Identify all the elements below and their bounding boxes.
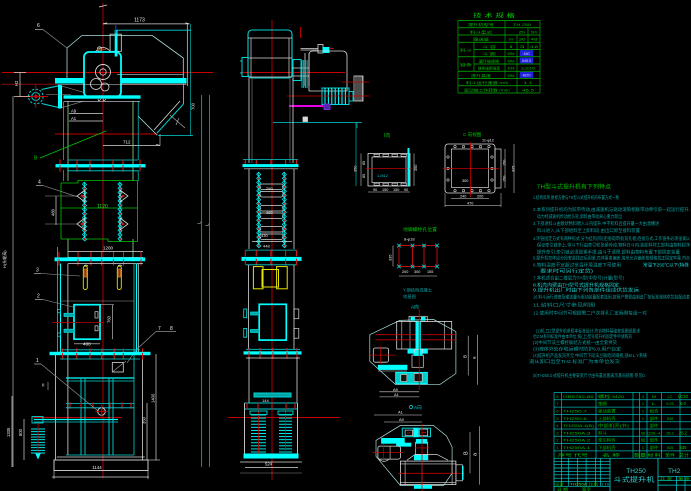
- svg-text:料斗运行速度 m/s: 料斗运行速度 m/s: [466, 80, 508, 85]
- svg-text:1: 1: [556, 445, 558, 450]
- svg-text:MM: MM: [508, 74, 515, 78]
- svg-text:448: 448: [263, 243, 270, 248]
- svg-text:链条破断强度: 链条破断强度: [478, 66, 500, 71]
- svg-text:11.给料口尺寸参见附图: 11.给料口尺寸参见附图: [533, 301, 595, 308]
- svg-text:9.提升机出厂时由下列各部件组成供货发运: 9.提升机出厂时由下列各部件组成供货发运: [533, 286, 640, 293]
- svg-text:A1: A1: [398, 410, 404, 415]
- svg-text:斗 距: 斗 距: [482, 51, 497, 56]
- svg-text:斗 容: 斗 容: [482, 44, 497, 49]
- svg-text:760: 760: [107, 315, 112, 323]
- svg-text:也Z.M系列标准件由本单位,统(上)型号提升机固定件申请购货: 也Z.M系列标准件由本单位,统(上)型号提升机固定件申请购货: [533, 333, 633, 340]
- svg-text:300: 300: [414, 270, 420, 274]
- svg-text:1.结构简单,维修方便与TH型斗式提升机的布置方式一致: 1.结构简单,维修方便与TH型斗式提升机的布置方式一致: [533, 194, 620, 201]
- svg-text:(3)液体外处存和运输时防护6.8.用户自定: (3)液体外处存和运输时防护6.8.用户自定: [533, 346, 622, 353]
- svg-text:3: 3: [36, 268, 39, 274]
- svg-text:斗式提升机: 斗式提升机: [614, 475, 656, 484]
- svg-text:组: 组: [641, 438, 645, 443]
- svg-text:日 期: 日 期: [557, 486, 569, 491]
- svg-text:430: 430: [261, 233, 268, 238]
- svg-text:350: 350: [414, 165, 418, 171]
- svg-text:5: 5: [556, 416, 558, 421]
- svg-text:12.使用时中间节可根据需二户次排孔匚定两侧每组一对: 12.使用时中间节可根据需二户次排孔匚定两侧每组一对: [533, 309, 648, 316]
- svg-text:200: 200: [477, 195, 483, 199]
- svg-text:2: 2: [556, 438, 558, 443]
- svg-text:部件: 部件: [650, 416, 659, 421]
- svg-text:90: 90: [373, 188, 377, 192]
- svg-text:组合: 组合: [650, 409, 659, 414]
- svg-text:535: 535: [667, 445, 674, 450]
- svg-text:地基图: 地基图: [403, 293, 416, 300]
- svg-text:GB5782-86: GB5782-86: [563, 394, 594, 399]
- svg-text:TH250.6: TH250.6: [563, 416, 587, 421]
- svg-text:要求时可另行定货): 要求时可另行定货): [540, 268, 594, 275]
- svg-text:TH250A.2: TH250A.2: [563, 438, 590, 443]
- svg-text:800: 800: [18, 428, 23, 436]
- svg-text:96: 96: [641, 430, 645, 435]
- svg-text:TH250: TH250: [626, 468, 646, 475]
- svg-text:700: 700: [191, 102, 196, 110]
- svg-text:签字: 签字: [582, 486, 592, 491]
- svg-text:7: 7: [158, 326, 161, 332]
- svg-text:第 张: 第 张: [678, 476, 691, 481]
- svg-text:6: 6: [556, 409, 558, 414]
- svg-text:A1: A1: [71, 116, 77, 121]
- svg-text:LC: LC: [668, 394, 673, 399]
- svg-text:350: 350: [142, 416, 147, 424]
- svg-text:TH2: TH2: [668, 468, 681, 475]
- svg-text:材 料: 材 料: [648, 452, 662, 459]
- svg-text:535: 535: [667, 416, 674, 421]
- svg-text:(5)TH250斗式提升机主要安装尺寸由布置总图表示基局部图: (5)TH250斗式提升机主要安装尺寸由布置总图表示基局部图 参见D.: [533, 372, 646, 379]
- svg-text:KN: KN: [508, 67, 515, 71]
- svg-text:螺栓 M20: 螺栓 M20: [598, 394, 626, 399]
- svg-text:B: B: [463, 451, 469, 455]
- svg-text:序号 代号: 序号 代号: [558, 452, 588, 459]
- svg-text:1400: 1400: [151, 393, 156, 403]
- svg-text:9.05: 9.05: [666, 401, 674, 406]
- svg-text:85: 85: [362, 161, 366, 165]
- svg-text:535: 535: [680, 445, 688, 450]
- svg-text:MM: MM: [508, 52, 515, 56]
- svg-text:1200: 1200: [103, 246, 114, 251]
- svg-text:A9: A9: [71, 108, 77, 113]
- svg-text:470: 470: [467, 202, 473, 206]
- svg-text:提升牵引,牵引链必须张紧手提,由斗于清理,卸料由物料布置下部: 提升牵引,牵引链必须张紧手提,由斗于清理,卸料由物料布置下部固定装置: [537, 249, 681, 256]
- svg-text:A1: A1: [394, 392, 400, 397]
- svg-text:M: M: [652, 394, 656, 399]
- svg-text:1144: 1144: [92, 465, 102, 470]
- svg-text:Sh: Sh: [531, 30, 538, 34]
- svg-text:TH型斗式提升机有下列特点: TH型斗式提升机有下列特点: [537, 183, 611, 191]
- svg-text:250: 250: [266, 186, 273, 191]
- svg-text:(4)提升机产品发货齐全,中间节下段法兰联结间隔板,部M.L: (4)提升机产品发货齐全,中间节下段法兰联结间隔板,部M.L.Y系统: [533, 352, 648, 359]
- svg-text:11-φ12: 11-φ12: [482, 139, 494, 143]
- svg-text:TH250A.3: TH250A.3: [563, 430, 590, 435]
- svg-text:150: 150: [503, 176, 507, 182]
- svg-text:335: 335: [389, 255, 393, 261]
- svg-text:325: 325: [512, 166, 516, 172]
- svg-text:8-φ18: 8-φ18: [404, 237, 415, 242]
- svg-text:4: 4: [38, 180, 41, 186]
- svg-text:26.2: 26.2: [666, 430, 674, 435]
- svg-text:共 张: 共 张: [660, 476, 673, 481]
- svg-text:1:10: 1:10: [601, 483, 609, 487]
- svg-text:名 称: 名 称: [602, 452, 620, 459]
- svg-text:部件: 部件: [650, 423, 659, 428]
- svg-text:≥320: ≥320: [521, 67, 535, 71]
- svg-text:350: 350: [354, 166, 358, 172]
- svg-text:180: 180: [266, 210, 273, 215]
- svg-text:输送量: 输送量: [473, 37, 489, 42]
- svg-text:驱动装置: 驱动装置: [598, 409, 616, 414]
- svg-text:部件: 部件: [650, 438, 659, 443]
- svg-text:LC10: LC10: [678, 394, 689, 399]
- svg-text:1: 1: [36, 358, 39, 364]
- svg-text:46.5: 46.5: [522, 88, 534, 92]
- svg-text:动力经减速机传动给头轮,卸料由带动离心重力卸出: 动力经减速机传动给头轮,卸料由带动离心重力卸出: [537, 213, 622, 220]
- svg-text:MM: MM: [508, 59, 515, 63]
- svg-text:6.物料温度不宜超过常温环境温度下可使用: 6.物料温度不宜超过常温环境温度下可使用: [533, 262, 621, 269]
- svg-text:300: 300: [462, 179, 468, 183]
- svg-text:4.8: 4.8: [530, 45, 538, 49]
- svg-text:2: 2: [37, 294, 40, 300]
- svg-text:中部机壳(节): 中部机壳(节): [598, 423, 630, 428]
- svg-text:150: 150: [393, 188, 399, 192]
- svg-text:垫圈: 垫圈: [598, 401, 607, 406]
- svg-text:150: 150: [382, 188, 388, 192]
- svg-text:240: 240: [460, 195, 466, 199]
- svg-text:A向: A向: [414, 404, 422, 410]
- svg-text:料斗进入,从下部给料至上卸料段,由出口卸至接料装置: 料斗进入,从下部给料至上卸料段,由出口卸至接料装置: [537, 227, 641, 234]
- svg-text:料斗型式: 料斗型式: [470, 29, 492, 34]
- svg-text:下部机壳: 下部机壳: [598, 445, 616, 450]
- svg-text:链条: 链条: [460, 62, 473, 67]
- svg-text:TH250A: TH250A: [570, 483, 588, 487]
- svg-text:9.0: 9.0: [680, 401, 686, 406]
- svg-text:480: 480: [524, 52, 530, 56]
- svg-text:料斗: 料斗: [460, 48, 473, 53]
- svg-text:4.环链固定方式有两种形式,分为挂钩(钩)连接或焊接(双孔板: 4.环链固定方式有两种形式,分为挂钩(钩)连接或焊接(双孔板)连接方式,工作链条…: [533, 235, 691, 242]
- svg-text:3: 3: [520, 45, 525, 49]
- svg-text:总计: 总计: [679, 452, 689, 459]
- svg-text:480: 480: [83, 342, 91, 347]
- svg-text:85: 85: [362, 174, 366, 178]
- svg-text:设计: 设计: [555, 482, 565, 487]
- svg-text:数量: 数量: [634, 452, 646, 459]
- svg-text:90: 90: [404, 188, 408, 192]
- svg-text:B: B: [463, 355, 468, 358]
- svg-text:料斗: 料斗: [598, 430, 607, 435]
- svg-text:单件: 单件: [665, 452, 675, 459]
- svg-text:部件: 部件: [650, 445, 659, 450]
- svg-text:10.料斗运行速度及输送量与驱动装置配套选用,按用户需要由制: 10.料斗运行速度及输送量与驱动装置配套选用,按用户需要由制造厂按标准规格供货装…: [533, 294, 691, 301]
- svg-text:7: 7: [556, 401, 558, 406]
- svg-text:m: m: [509, 38, 514, 42]
- svg-text:648.5: 648.5: [522, 59, 531, 63]
- svg-text:8: 8: [556, 394, 558, 399]
- svg-text:4870: 4870: [523, 74, 531, 78]
- svg-text:II: II: [42, 383, 45, 388]
- svg-text:480: 480: [51, 208, 56, 216]
- svg-text:155: 155: [427, 270, 433, 274]
- svg-text:地脚螺栓孔位置: 地脚螺栓孔位置: [403, 226, 438, 233]
- svg-text:A向: A向: [411, 304, 419, 310]
- svg-text:8: 8: [170, 326, 173, 332]
- svg-text:1: 1: [642, 445, 644, 450]
- svg-text:牵引构件: 牵引构件: [598, 438, 616, 443]
- svg-text:3.下部进料斗由散状物料喂入斗内提升,中不积料且提升量一大由: 3.下部进料斗由散状物料喂入斗内提升,中不积料且提升量一大由溜槽进: [533, 220, 660, 227]
- svg-text:技 术 规 格: 技 术 规 格: [473, 12, 516, 20]
- svg-text:1173: 1173: [134, 18, 145, 24]
- svg-text:Q235—A: Q235—A: [648, 430, 661, 435]
- svg-text:2.本系列提升机均为胶带传动,由减速机与驱动滚筒相联带动牵引: 2.本系列提升机均为胶带传动,由减速机与驱动滚筒相联带动牵引胶一起运行提升,: [533, 206, 690, 213]
- svg-text:提升机型号: 提升机型号: [468, 22, 494, 27]
- svg-text:144: 144: [262, 398, 269, 403]
- svg-text:H(头轮高): H(头轮高): [1, 250, 7, 268]
- svg-text:1: 1: [642, 409, 644, 414]
- svg-text:150: 150: [503, 160, 507, 166]
- svg-text:7.本机适合由二楼层为TH型(中型号)计量(型号): 7.本机适合由二楼层为TH型(中型号)计量(型号): [533, 275, 625, 282]
- svg-text:TH250.7: TH250.7: [563, 409, 587, 414]
- svg-text:712: 712: [123, 140, 131, 145]
- svg-text:TH 250: TH 250: [513, 23, 531, 27]
- svg-text:6: 6: [37, 23, 40, 29]
- svg-text:3: 3: [556, 430, 558, 435]
- svg-text:C 向视图: C 向视图: [463, 131, 482, 138]
- svg-text:Zh: Zh: [519, 30, 526, 34]
- svg-text:5.提升机壳体应分段安装找正后固紧,壳体垂直偏差,每米允许偏: 5.提升机壳体应分段安装找正后固紧,壳体垂直偏差,每米允许偏差按规格找正固定牢靠…: [533, 255, 691, 262]
- svg-text:(2)中间节法兰螺栓联结方式统一由全套供货: (2)中间节法兰螺栓联结方式统一由全套供货: [533, 339, 618, 346]
- svg-text:A9: A9: [399, 417, 405, 422]
- svg-text:H2: H2: [14, 80, 19, 86]
- svg-text:I向: I向: [384, 132, 390, 139]
- svg-text:1: 1: [642, 401, 644, 406]
- svg-text:常温下250℃以下(特殊: 常温下250℃以下(特殊: [643, 262, 690, 269]
- svg-text:1.1: 1.1: [524, 81, 533, 85]
- svg-text:1335: 1335: [6, 427, 11, 437]
- svg-text:524: 524: [265, 462, 273, 467]
- svg-text:26.2: 26.2: [679, 430, 688, 435]
- svg-text:1: 1: [642, 416, 644, 421]
- svg-text:48: 48: [531, 38, 538, 42]
- svg-text:200: 200: [402, 270, 408, 274]
- svg-text:30: 30: [519, 38, 526, 42]
- svg-text:提升高度: 提升高度: [471, 73, 491, 78]
- svg-text:保证牵引链条上,带斗下行由牵引轮张紧传动,物料在斗内,装卸料: 保证牵引链条上,带斗下行由牵引轮张紧传动,物料在斗内,装卸料时工卸料由物料卸净: [537, 242, 691, 249]
- svg-text:上部机壳: 上部机壳: [598, 416, 616, 421]
- svg-text:驱动轴工作转数 r/min: 驱动轴工作转数 r/min: [464, 87, 510, 92]
- svg-text:1-M12: 1-M12: [377, 174, 388, 178]
- svg-text:TH250A.4(B): TH250A.4(B): [563, 423, 595, 428]
- svg-text:圆环链规格: 圆环链规格: [479, 58, 499, 63]
- svg-text:比例: 比例: [589, 482, 599, 487]
- svg-text:TH250A.1: TH250A.1: [563, 445, 590, 450]
- svg-text:Y.钢结构混凝土: Y.钢结构混凝土: [403, 287, 432, 294]
- svg-text:1120: 1120: [97, 204, 108, 210]
- svg-text:道从卸口出至TH2.标准厂为本单位发货: 道从卸口出至TH2.标准厂为本单位发货: [529, 358, 621, 365]
